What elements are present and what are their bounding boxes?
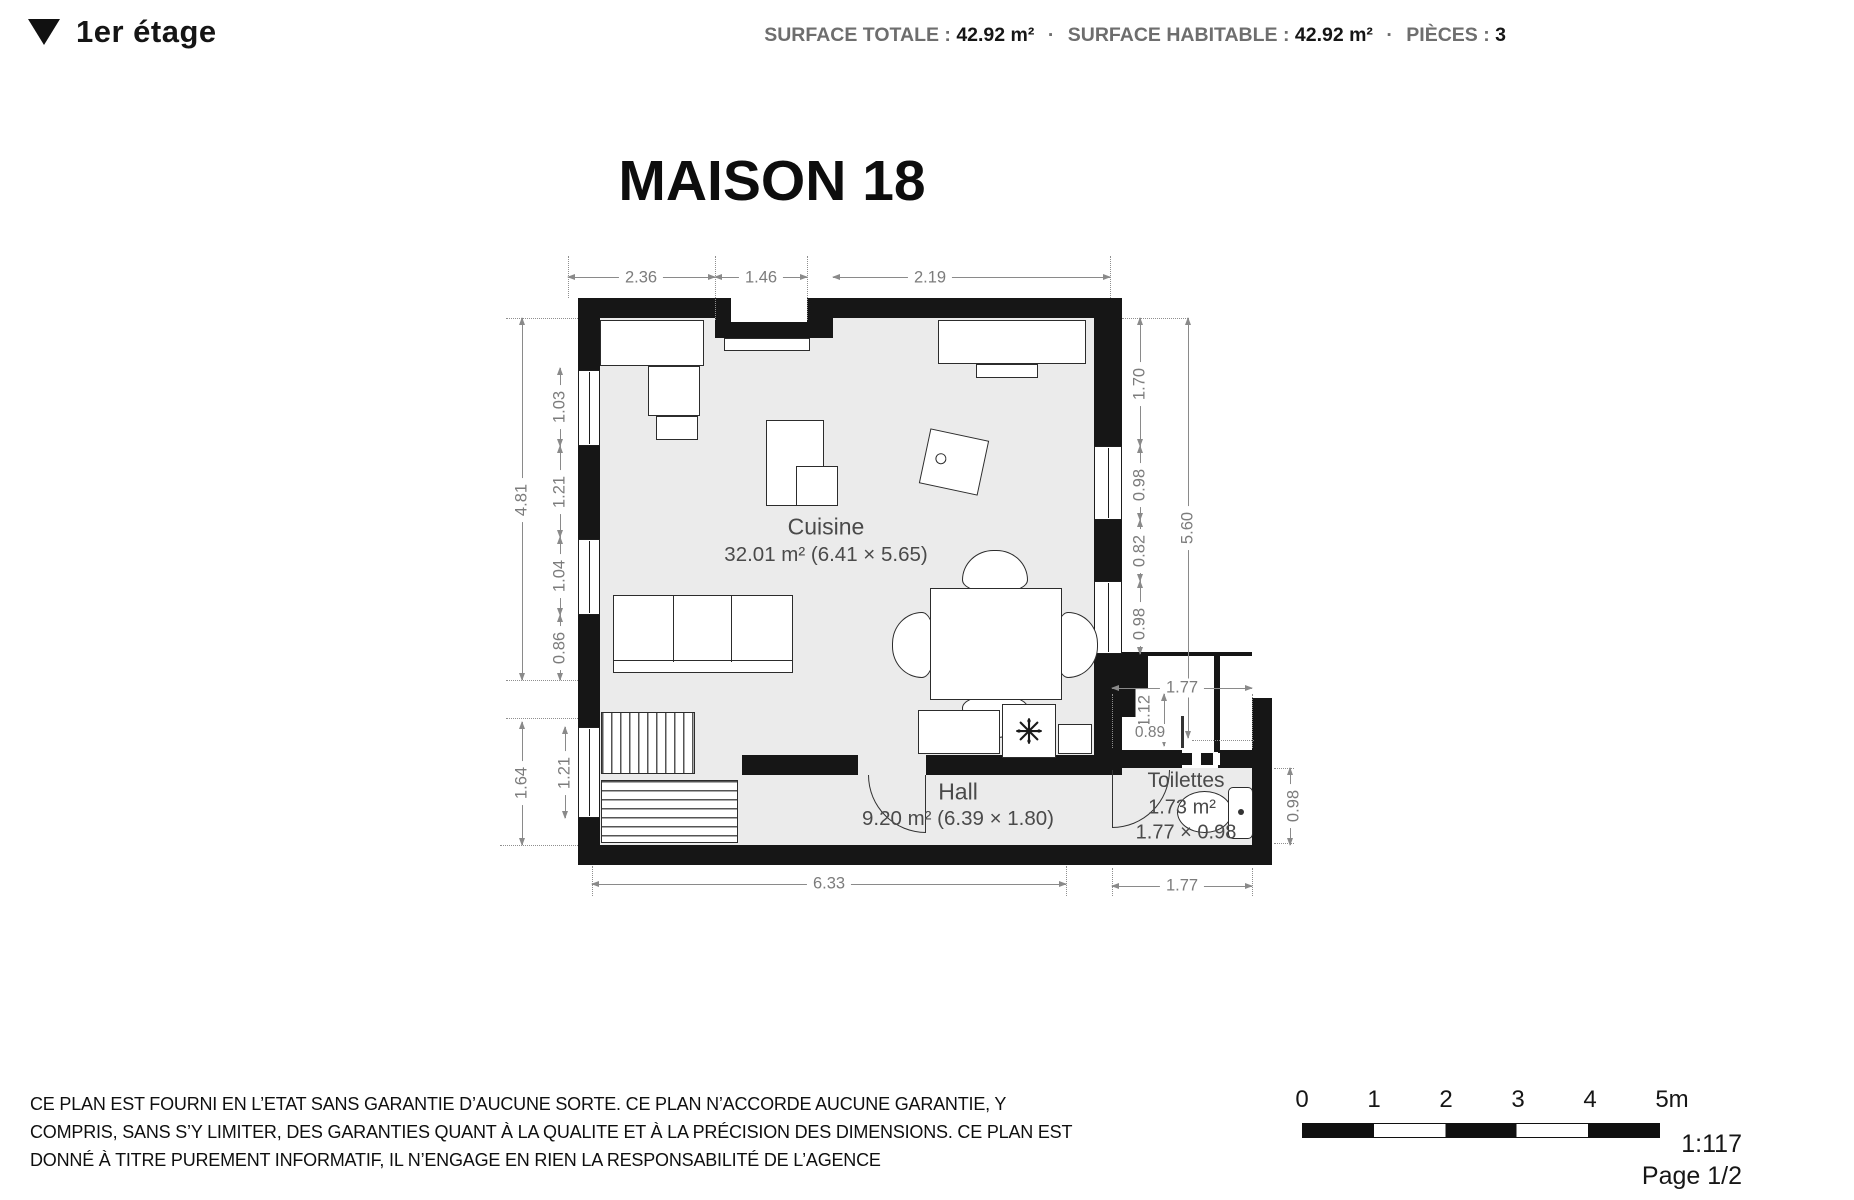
scale-bar: 0 1 2 3 4 5m 1:117 Page 1/2 bbox=[1290, 1086, 1742, 1196]
counter-top-right bbox=[938, 320, 1086, 364]
sink-drain bbox=[934, 452, 947, 465]
sofa-cushion-divider bbox=[731, 596, 732, 662]
extension-line bbox=[715, 256, 716, 320]
extension-line bbox=[506, 718, 578, 719]
door-leaf bbox=[1112, 770, 1113, 828]
counter-hall bbox=[918, 710, 1000, 754]
extension-line bbox=[1274, 843, 1294, 844]
wall-right bbox=[1094, 298, 1122, 775]
sofa-cushion-divider bbox=[673, 596, 674, 662]
scale-tick: 0 bbox=[1295, 1086, 1308, 1114]
dimension-label: 1.46 bbox=[739, 269, 783, 288]
disclaimer-line: DONNÉ À TITRE PUREMENT INFORMATIF, IL N’… bbox=[30, 1146, 1072, 1174]
stat-value: 42.92 m² bbox=[1295, 24, 1373, 46]
extension-line bbox=[500, 845, 578, 846]
stairs-lower-flight bbox=[601, 780, 738, 843]
shelf bbox=[976, 364, 1038, 378]
stat-separator: · bbox=[1386, 24, 1393, 46]
cabinet bbox=[648, 366, 700, 416]
sofa bbox=[613, 595, 793, 673]
dining-table bbox=[930, 588, 1062, 700]
plan-title: MAISON 18 bbox=[618, 148, 925, 214]
scale-ratio: 1:117 bbox=[1681, 1130, 1742, 1159]
floor-selector[interactable]: 1er étage bbox=[28, 14, 217, 50]
sofa-front-edge bbox=[614, 660, 792, 672]
room-area-cuisine: 32.01 m² (6.41 × 5.65) bbox=[724, 543, 927, 567]
dimension-label: 1.77 bbox=[1160, 877, 1204, 896]
stat-label: SURFACE HABITABLE : bbox=[1068, 24, 1290, 46]
fridge bbox=[1002, 704, 1056, 758]
dimension-label: 1.21 bbox=[556, 751, 575, 795]
dimension-label: 1.70 bbox=[1131, 362, 1150, 406]
cabinet-small bbox=[656, 416, 698, 440]
dimension-label: 1.21 bbox=[551, 470, 570, 514]
extension-line bbox=[1252, 868, 1253, 896]
wall-top-right bbox=[833, 298, 1122, 318]
room-size-toilettes: 1.77 × 0.98 bbox=[1136, 822, 1237, 845]
dimension-label: 1.04 bbox=[551, 554, 570, 598]
room-name-hall: Hall bbox=[938, 779, 978, 806]
dimension-label: 0.98 bbox=[1131, 602, 1150, 646]
scale-tick: 4 bbox=[1583, 1086, 1596, 1114]
room-name-cuisine: Cuisine bbox=[788, 514, 865, 541]
wall-divider-right bbox=[926, 755, 1122, 775]
wall-toilettes-top-left bbox=[1112, 750, 1182, 768]
scale-tick: 2 bbox=[1439, 1086, 1452, 1114]
extension-line bbox=[1122, 318, 1188, 319]
dimension-label: 0.98 bbox=[1131, 463, 1150, 507]
dimension-label: 1.64 bbox=[513, 761, 532, 805]
wall-recess-connector-right bbox=[807, 298, 833, 338]
stairs-upper-flight bbox=[601, 712, 695, 774]
scale-bar-segments bbox=[1302, 1123, 1660, 1138]
window bbox=[578, 727, 600, 818]
dimension-label: 1.03 bbox=[551, 385, 570, 429]
extension-line bbox=[1112, 868, 1113, 896]
room-area-hall: 9.20 m² (6.39 × 1.80) bbox=[862, 807, 1054, 831]
extension-line bbox=[1110, 256, 1111, 298]
extension-line bbox=[1274, 768, 1294, 769]
snowflake-icon bbox=[1014, 716, 1044, 746]
stat-label: SURFACE TOTALE : bbox=[764, 24, 951, 46]
dimension-label: 4.81 bbox=[513, 478, 532, 522]
window bbox=[1094, 581, 1122, 654]
collapse-triangle-icon[interactable] bbox=[28, 19, 60, 45]
wall-divider-left bbox=[742, 755, 858, 775]
room-area-toilettes: 1.73 m² bbox=[1148, 797, 1216, 820]
dimension-line bbox=[833, 277, 1110, 278]
sink-unit bbox=[919, 428, 989, 495]
dimension-label: 5.60 bbox=[1179, 506, 1198, 550]
extension-line bbox=[506, 318, 578, 319]
stat-separator: · bbox=[1048, 24, 1055, 46]
window bbox=[1094, 446, 1122, 520]
floor-label: 1er étage bbox=[76, 14, 217, 50]
extension-line bbox=[568, 256, 569, 298]
dimension-label: 0.89 bbox=[1129, 724, 1171, 742]
wall-nook-thin bbox=[1214, 652, 1220, 752]
window bbox=[578, 370, 600, 446]
extension-line bbox=[1112, 694, 1113, 748]
page-indicator: Page 1/2 bbox=[1642, 1162, 1742, 1191]
extension-line bbox=[592, 866, 593, 896]
counter-top-left bbox=[600, 320, 704, 366]
stat-value: 42.92 m² bbox=[956, 24, 1034, 46]
dimension-label: 0.98 bbox=[1285, 784, 1304, 828]
scale-tick: 5m bbox=[1655, 1086, 1688, 1114]
window-sill bbox=[724, 338, 810, 351]
dimension-label: 6.33 bbox=[807, 875, 851, 894]
counter-small bbox=[1058, 724, 1092, 754]
wall-bottom bbox=[578, 845, 1272, 865]
extension-line bbox=[1066, 866, 1067, 896]
surface-stats: SURFACE TOTALE : 42.92 m² · SURFACE HABI… bbox=[764, 24, 1506, 47]
dimension-label: 2.19 bbox=[908, 269, 952, 288]
room-name-toilettes: Toilettes bbox=[1147, 769, 1224, 793]
nook-door-stub bbox=[1181, 716, 1184, 748]
extension-line bbox=[1252, 694, 1253, 748]
scale-tick: 3 bbox=[1511, 1086, 1524, 1114]
window bbox=[578, 539, 600, 615]
floor-plan-page: 1er étage SURFACE TOTALE : 42.92 m² · SU… bbox=[0, 0, 1854, 1200]
disclaimer-line: CE PLAN EST FOURNI EN L’ETAT SANS GARANT… bbox=[30, 1090, 1072, 1118]
desk-chair bbox=[796, 466, 838, 506]
wall-opening-dashed bbox=[1180, 753, 1220, 765]
wall-bumpout-right bbox=[1252, 698, 1272, 865]
extension-line bbox=[1192, 740, 1254, 741]
wall-top-left bbox=[578, 298, 731, 318]
extension-line bbox=[506, 680, 578, 681]
stat-label: PIÈCES : bbox=[1406, 24, 1489, 46]
disclaimer: CE PLAN EST FOURNI EN L’ETAT SANS GARANT… bbox=[30, 1090, 1072, 1174]
scale-tick: 1 bbox=[1367, 1086, 1380, 1114]
dimension-label: 2.36 bbox=[619, 269, 663, 288]
toilet-flush-knob bbox=[1238, 809, 1244, 815]
stat-value: 3 bbox=[1495, 24, 1506, 46]
extension-line bbox=[807, 256, 808, 320]
dimension-label: 0.86 bbox=[551, 626, 570, 670]
disclaimer-line: COMPRIS, SANS S’Y LIMITER, DES GARANTIES… bbox=[30, 1118, 1072, 1146]
dimension-label: 0.82 bbox=[1131, 529, 1150, 573]
